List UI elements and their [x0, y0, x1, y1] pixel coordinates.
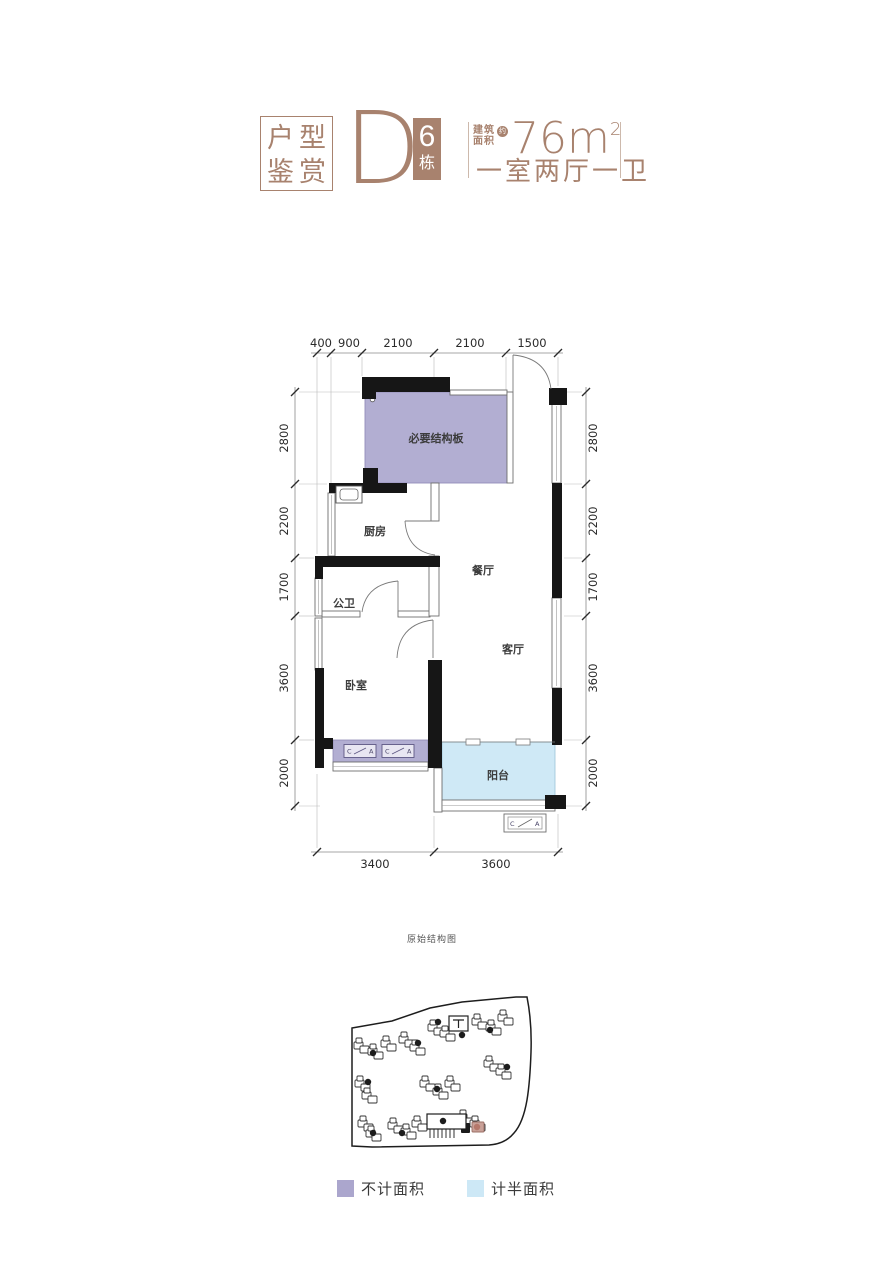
- dim-right-1: 2800: [586, 423, 600, 452]
- gallery-title-line1: 户型: [266, 121, 332, 155]
- dim-top-2: 900: [338, 336, 360, 350]
- dim-right-4: 3600: [586, 663, 600, 692]
- legend-label-half-area: 计半面积: [491, 1178, 555, 1199]
- dim-bottom-1: 3400: [360, 857, 389, 871]
- room-label-balcony: 阳台: [487, 768, 509, 782]
- dim-top-5: 1500: [517, 336, 546, 350]
- dim-left-2: 2200: [277, 506, 291, 535]
- building-suffix: 栋: [413, 154, 441, 174]
- room-label-kitchen: 厨房: [364, 524, 386, 538]
- svg-text:C: C: [347, 748, 352, 756]
- gallery-title-line2: 鉴赏: [266, 155, 332, 189]
- room-label-bedroom: 卧室: [345, 678, 367, 692]
- svg-text:A: A: [407, 748, 412, 756]
- room-label-living: 客厅: [501, 642, 524, 656]
- dim-left-4: 3600: [277, 663, 291, 692]
- ac-unit-2: C A: [382, 745, 414, 758]
- floorplan-page: { "header": { "gallery_line1": "户型", "ga…: [0, 0, 877, 1280]
- dim-right-3: 1700: [586, 572, 600, 601]
- dim-top-4: 2100: [455, 336, 484, 350]
- dim-bottom-2: 3600: [481, 857, 510, 871]
- building-number-box: 6 栋: [413, 118, 441, 180]
- kitchen-sink-icon: [336, 486, 362, 503]
- layout-description: 一室两厅一卫: [476, 156, 650, 186]
- site-map: [338, 985, 543, 1165]
- area-prefix: 建筑 面积: [473, 125, 495, 147]
- ac-unit-1: C A: [344, 745, 376, 758]
- kitchen-door-arc: [405, 521, 435, 555]
- dim-left-3: 1700: [277, 572, 291, 601]
- bath-door-arc: [362, 581, 398, 612]
- header-divider-left: [468, 122, 469, 178]
- approx-mark: 约: [497, 126, 508, 137]
- area-value: 76m2: [511, 108, 621, 161]
- ac-unit-3: C A: [504, 814, 546, 832]
- gallery-title-box: 户型 鉴赏: [260, 116, 333, 191]
- header-divider-right: [620, 122, 621, 178]
- room-label-dining: 餐厅: [471, 563, 494, 577]
- dim-left-5: 2000: [277, 758, 291, 787]
- dim-right-5: 2000: [586, 758, 600, 787]
- svg-text:A: A: [369, 748, 374, 756]
- floor-plan: 400 900 2100 2100 1500 2800 2200 1700 36…: [270, 335, 615, 880]
- svg-text:C: C: [385, 748, 390, 756]
- highlighted-building-marker: [474, 1124, 480, 1130]
- building-number: 6: [413, 120, 441, 154]
- dim-right-2: 2200: [586, 506, 600, 535]
- dim-top-3: 2100: [383, 336, 412, 350]
- unit-letter: D: [344, 103, 414, 195]
- legend-label-no-area: 不计面积: [361, 1178, 425, 1199]
- dim-top-1: 400: [310, 336, 332, 350]
- room-label-structure: 必要结构板: [408, 431, 465, 445]
- room-label-bath: 公卫: [333, 597, 355, 610]
- svg-text:A: A: [535, 820, 540, 828]
- legend: 不计面积 计半面积: [337, 1179, 597, 1197]
- svg-text:C: C: [510, 820, 515, 828]
- dim-left-1: 2800: [277, 423, 291, 452]
- legend-swatch-half-area: [467, 1180, 484, 1197]
- sitemap-title: 原始结构图: [382, 932, 482, 945]
- legend-swatch-no-area: [337, 1180, 354, 1197]
- entry-door-arc: [513, 355, 551, 389]
- bedroom-door-arc: [397, 620, 433, 658]
